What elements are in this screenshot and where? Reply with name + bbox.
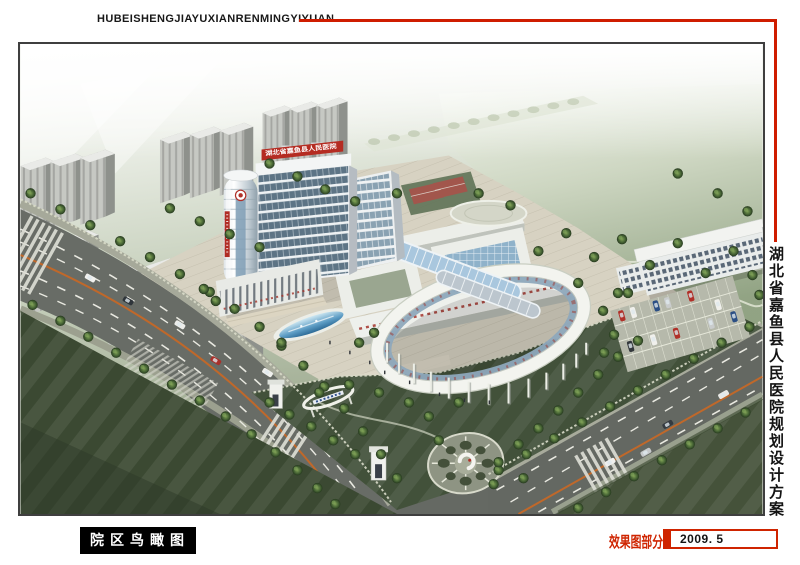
rendering-frame: 湖北省嘉鱼县人民医院 [18,42,765,516]
presentation-board: HUBEISHENGJIAYUXIANRENMINGYIYUAN [0,0,800,565]
date-box: 2009. 5 [663,529,778,549]
view-label: 院区鸟瞰图 [80,527,196,554]
section-label: 效果图部分 [609,531,663,552]
aerial-rendering: 湖北省嘉鱼县人民医院 [20,44,763,514]
accent-line-vertical [774,19,777,242]
side-project-title: 湖北省嘉鱼县人民医院规划设计方案 [761,246,789,518]
accent-line-horizontal [299,19,777,22]
date-text: 2009. 5 [680,532,724,546]
corner-cylinder-tower [224,170,258,287]
